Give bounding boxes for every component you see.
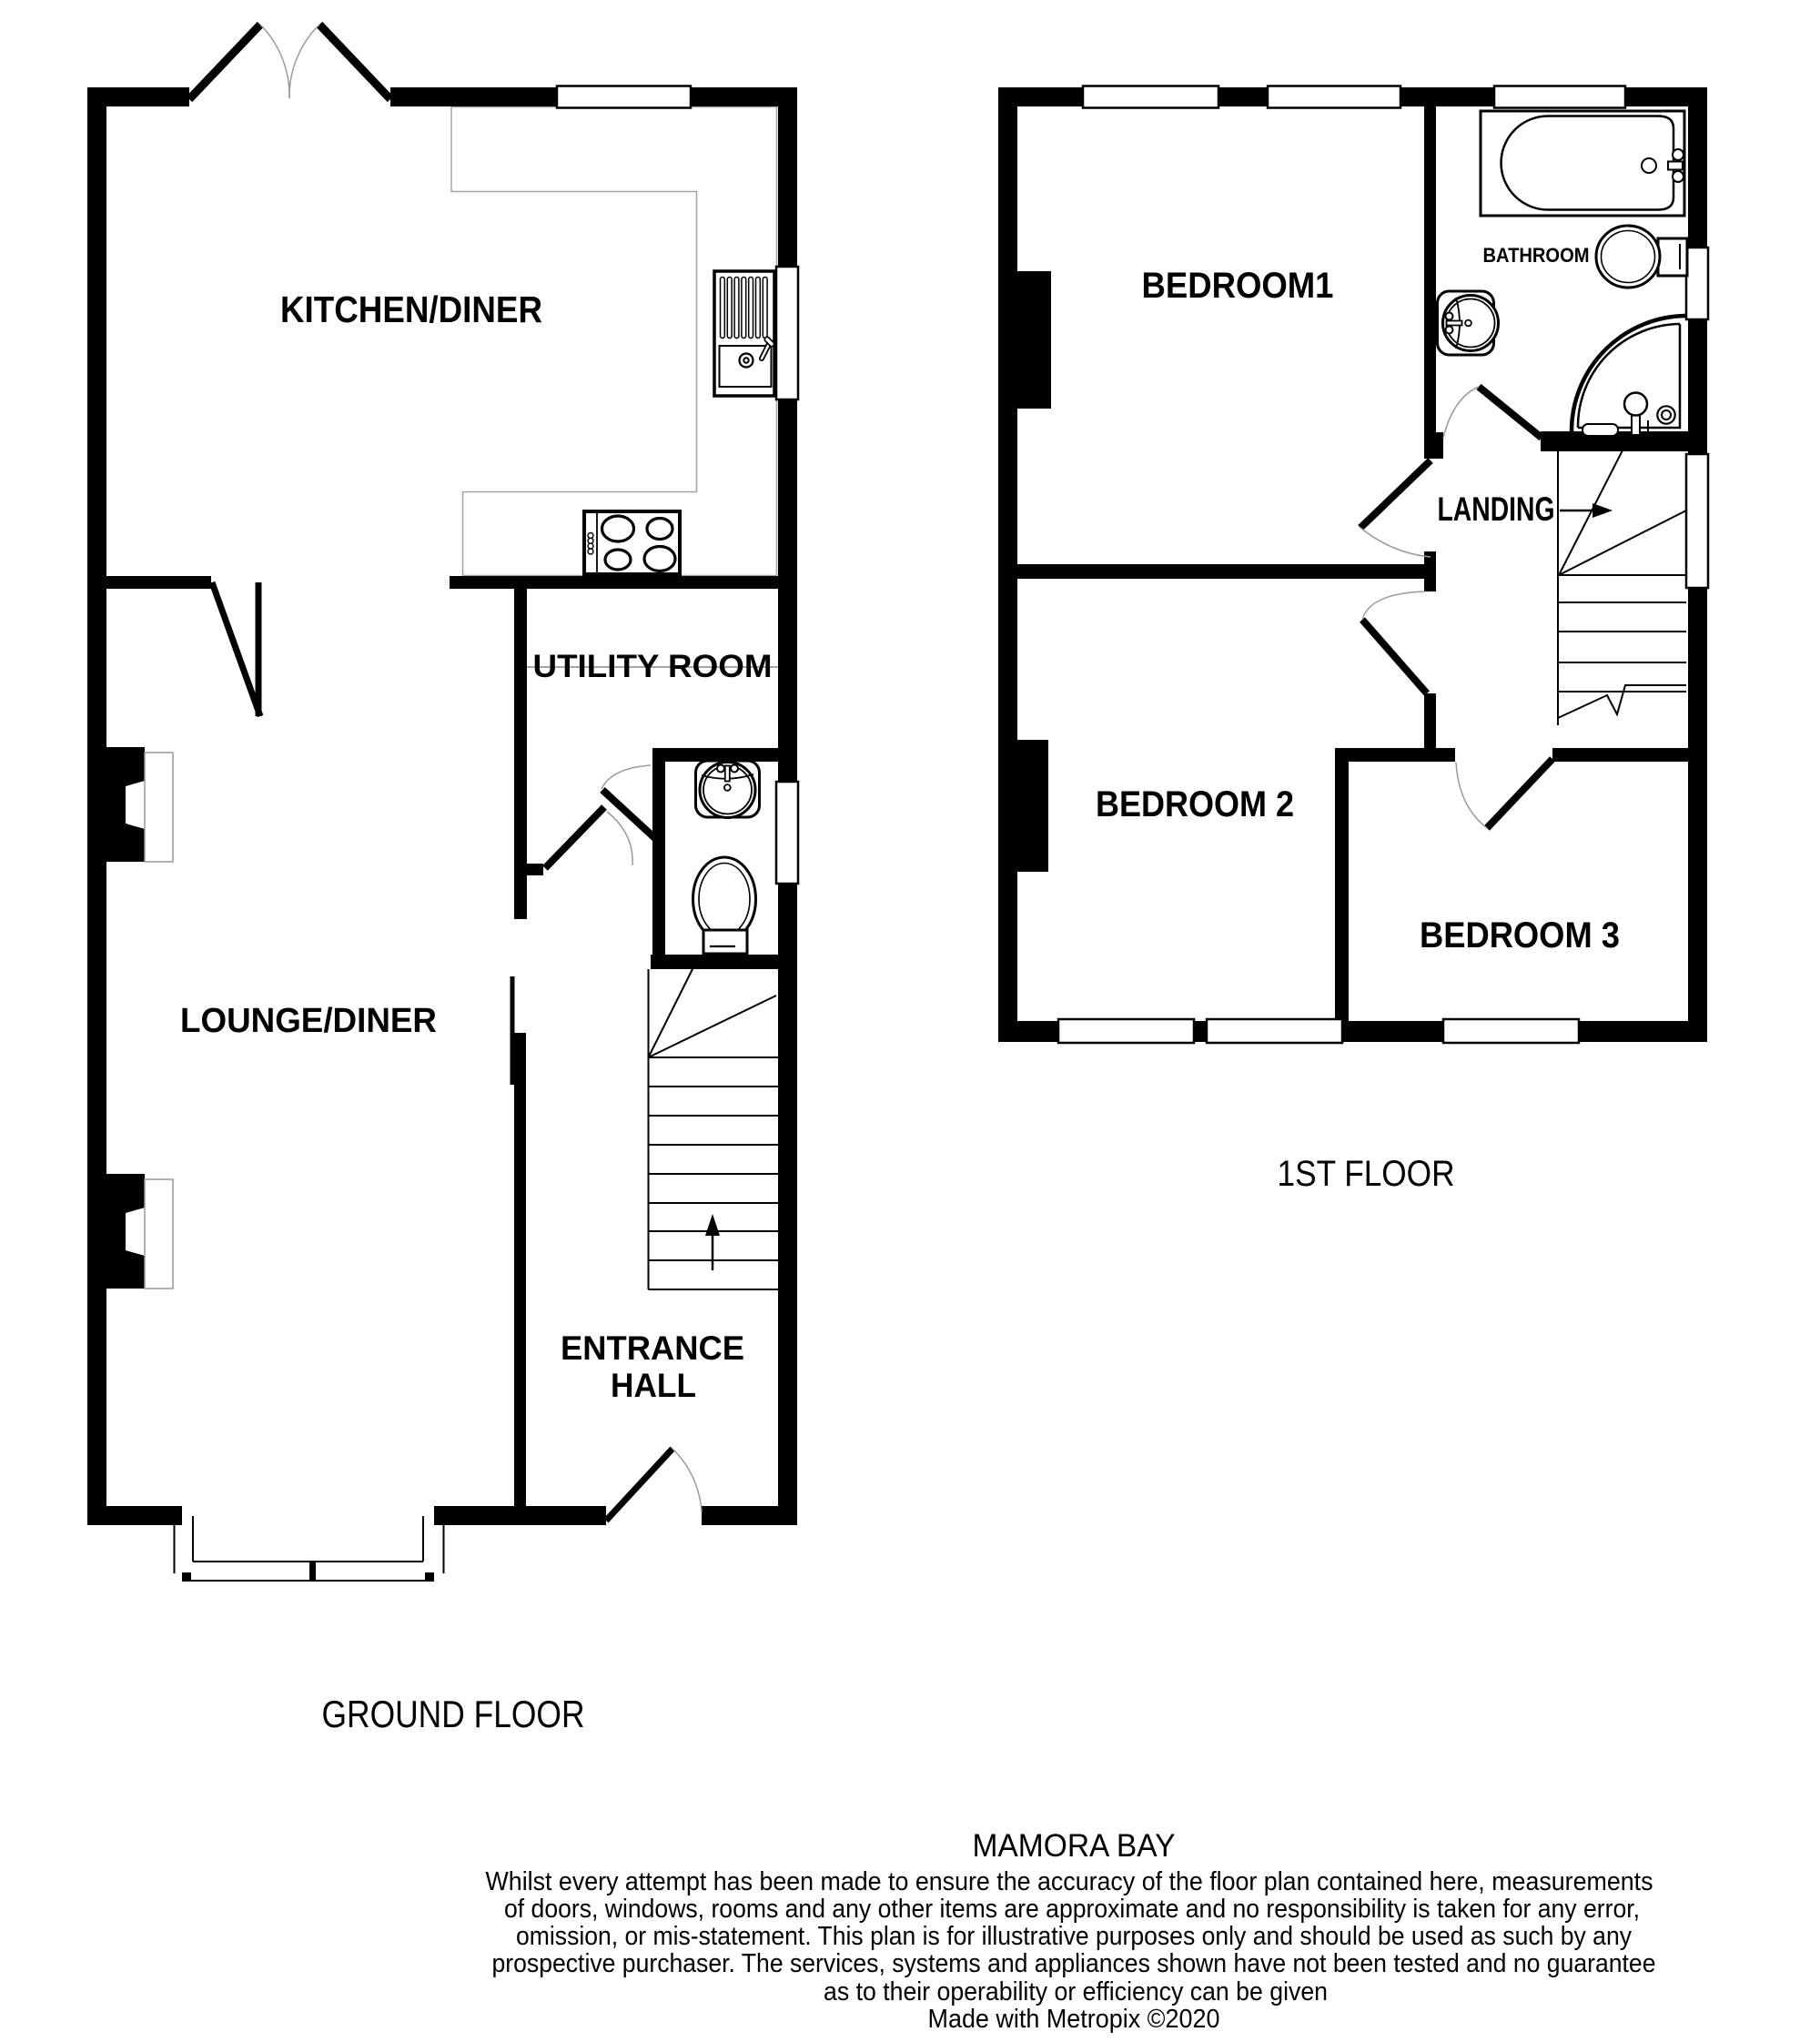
svg-text:of doors, windows, rooms and a: of doors, windows, rooms and any other i… (504, 1895, 1640, 1924)
svg-text:prospective purchaser. The ser: prospective purchaser. The services, sys… (492, 1949, 1656, 1978)
svg-text:BATHROOM: BATHROOM (1483, 244, 1590, 267)
svg-text:ENTRANCE: ENTRANCE (561, 1329, 744, 1367)
svg-text:UTILITY ROOM: UTILITY ROOM (533, 649, 773, 684)
svg-text:as to their operability or eff: as to their operability or efficiency ca… (824, 1977, 1328, 2007)
svg-text:Made with Metropix ©2020: Made with Metropix ©2020 (928, 2005, 1220, 2034)
svg-text:HALL: HALL (611, 1367, 696, 1404)
svg-text:BEDROOM1: BEDROOM1 (1142, 266, 1334, 306)
svg-text:KITCHEN/DINER: KITCHEN/DINER (280, 288, 542, 330)
svg-text:Whilst every attempt has been: Whilst every attempt has been made to en… (486, 1867, 1653, 1896)
svg-text:BEDROOM 2: BEDROOM 2 (1096, 784, 1294, 824)
svg-text:LANDING: LANDING (1438, 490, 1555, 528)
svg-text:GROUND FLOOR: GROUND FLOOR (322, 1693, 585, 1735)
svg-text:1ST FLOOR: 1ST FLOOR (1278, 1154, 1455, 1194)
svg-text:MAMORA BAY: MAMORA BAY (973, 1828, 1176, 1864)
svg-text:BEDROOM 3: BEDROOM 3 (1420, 915, 1620, 955)
svg-text:LOUNGE/DINER: LOUNGE/DINER (180, 1002, 437, 1040)
svg-text:omission, or mis-statement. Th: omission, or mis-statement. This plan is… (516, 1922, 1632, 1951)
